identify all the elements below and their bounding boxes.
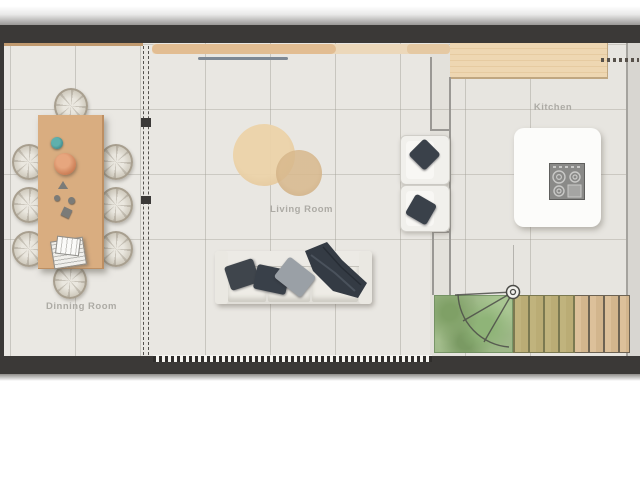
sideboard-left-section <box>152 44 336 54</box>
kitchen-island <box>514 128 601 227</box>
wall-tv-icon <box>198 57 288 60</box>
living-room-label: Living Room <box>244 204 359 215</box>
partition-track-tick <box>141 118 151 127</box>
bottom-shadow <box>0 374 640 381</box>
counter-vent-icon <box>601 58 639 62</box>
table-decor <box>61 207 73 219</box>
table-decor <box>54 195 60 201</box>
vase-icon <box>51 137 63 149</box>
dining-wall-trim <box>4 43 143 46</box>
top-shadow <box>0 6 640 25</box>
table-decor <box>68 197 75 204</box>
table-decor <box>58 181 68 189</box>
living-kitchen-wall-upper <box>430 57 432 130</box>
floor-plan: Dinning Room Living Room Kitchen <box>0 0 640 480</box>
kitchen-counter <box>450 43 608 79</box>
armchair-top <box>400 135 450 185</box>
dining-chair <box>99 231 133 267</box>
kitchen-left-wall <box>449 77 451 295</box>
dining-chair <box>99 187 133 223</box>
partition-track-tick <box>141 196 151 204</box>
sideboard-right-section <box>407 44 450 54</box>
window-band-icon <box>153 355 432 362</box>
cooktop-icon <box>549 163 585 200</box>
dining-room-label: Dinning Room <box>18 301 145 312</box>
round-wood-rug-small <box>276 150 322 196</box>
fruit-bowl-icon <box>54 153 76 175</box>
kitchen-label: Kitchen <box>508 102 598 113</box>
dining-chair <box>99 144 133 180</box>
armchair-bottom <box>400 185 450 232</box>
living-room-floor <box>143 43 430 356</box>
throw-blanket <box>295 241 375 305</box>
sofa-arm-left <box>215 251 228 304</box>
wall-top <box>0 25 640 43</box>
sofa <box>215 251 372 304</box>
door-swing-icon <box>425 278 565 358</box>
dining-table <box>38 115 104 269</box>
book-stack-top <box>55 236 81 257</box>
wall-connector-upper <box>430 129 449 131</box>
